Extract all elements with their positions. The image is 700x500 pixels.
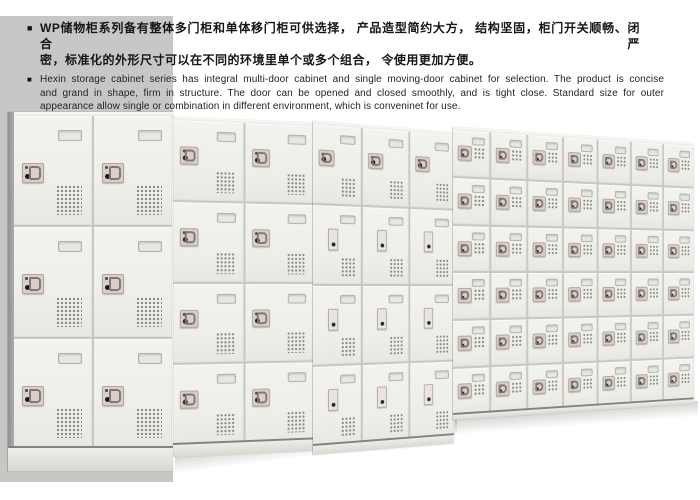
- door-lock: [568, 288, 581, 302]
- door-lock: [636, 374, 648, 388]
- door-handle-slot: [472, 374, 485, 383]
- door-handle-slot: [138, 241, 162, 252]
- intro-zh-line: 密，标准化的外形尺寸可以在不同的环境里单个或多个组合， 令使用更加方便。: [40, 52, 640, 68]
- door-lock: [252, 229, 270, 247]
- door-lock: [568, 333, 581, 348]
- locker-door: [528, 181, 562, 226]
- locker-door: [598, 273, 630, 316]
- door-lock: [636, 243, 648, 257]
- door-lock: [668, 158, 679, 172]
- locker-door: [173, 364, 244, 445]
- door-lock: [252, 389, 270, 407]
- lock-hasp: [29, 166, 41, 180]
- vent-grille: [583, 378, 594, 391]
- locker-door: [491, 133, 526, 180]
- door-grid: [173, 120, 314, 445]
- door-handle-slot: [648, 148, 659, 156]
- lock-hasp: [185, 312, 196, 324]
- door-handle-slot: [58, 130, 82, 141]
- door-grid: [313, 124, 454, 446]
- locker-door: [453, 178, 489, 225]
- door-lock: [636, 156, 648, 170]
- lock-hasp: [670, 375, 677, 383]
- lock-hasp: [638, 202, 645, 210]
- door-handle-slot: [217, 213, 236, 223]
- door-handle-slot: [435, 142, 449, 151]
- door-handle-slot: [509, 140, 522, 149]
- vent-grille: [548, 380, 559, 393]
- vent-grille: [389, 336, 403, 355]
- door-lock: [458, 336, 472, 351]
- locker-door: [363, 207, 409, 284]
- cabinet-c-4tier-3door: [313, 121, 454, 455]
- intro-bullet-en: ■ Hexin storage cabinet series has integ…: [27, 73, 664, 114]
- door-lock: [458, 145, 472, 161]
- door-lock: [533, 150, 546, 165]
- locker-door: [564, 273, 597, 316]
- vent-grille: [341, 416, 356, 436]
- door-handle-slot: [679, 193, 690, 201]
- vent-grille: [548, 197, 559, 210]
- door-handle-slot: [679, 364, 690, 372]
- door-lock: [603, 376, 615, 391]
- keyhole-dot: [380, 244, 384, 248]
- lock-hasp: [670, 332, 677, 340]
- door-handle-slot: [546, 325, 558, 333]
- locker-door: [632, 273, 663, 315]
- lock-hasp: [535, 382, 543, 391]
- keyhole-dot: [331, 403, 335, 407]
- locker-door: [14, 227, 92, 336]
- locker-door: [410, 132, 454, 209]
- lock-hasp: [498, 291, 507, 300]
- vent-grille: [681, 373, 691, 385]
- door-handle-slot: [340, 374, 356, 384]
- door-handle-slot: [58, 353, 82, 364]
- door-handle-slot: [615, 367, 626, 375]
- door-key-lock: [377, 308, 387, 329]
- vent-grille: [511, 289, 523, 302]
- door-handle-slot: [217, 374, 236, 384]
- vent-grille: [616, 288, 627, 300]
- door-lock: [568, 197, 581, 212]
- locker-door: [632, 142, 663, 185]
- locker-door: [598, 361, 630, 405]
- door-lock: [180, 309, 199, 327]
- cabinet-a-3tier-2door: [8, 112, 173, 471]
- vent-grille: [56, 297, 82, 327]
- vent-grille: [681, 288, 691, 300]
- locker-door: [246, 203, 314, 281]
- lock-hasp: [670, 290, 677, 298]
- door-handle-slot: [435, 295, 449, 304]
- lock-hasp: [605, 201, 613, 210]
- door-key-lock: [377, 230, 387, 251]
- door-handle-slot: [615, 191, 626, 199]
- door-lock: [668, 201, 679, 215]
- door-handle-slot: [58, 241, 82, 252]
- door-lock: [458, 288, 472, 303]
- door-lock: [319, 149, 335, 166]
- vent-grille: [136, 185, 162, 215]
- door-lock: [180, 228, 199, 246]
- locker-door: [528, 273, 562, 317]
- door-handle-slot: [648, 365, 659, 373]
- door-lock: [603, 243, 615, 257]
- vent-grille: [583, 199, 594, 212]
- locker-door: [564, 318, 597, 362]
- door-handle-slot: [509, 186, 522, 194]
- vent-grille: [474, 336, 486, 349]
- locker-door: [598, 317, 630, 360]
- locker-door: [410, 286, 454, 361]
- door-handle-slot: [389, 295, 404, 304]
- door-handle-slot: [581, 234, 593, 242]
- vent-grille: [436, 410, 449, 429]
- door-lock: [22, 274, 44, 294]
- door-lock: [568, 152, 581, 167]
- vent-grille: [474, 383, 486, 396]
- locker-door: [491, 227, 526, 272]
- door-handle-slot: [472, 279, 485, 287]
- door-handle-slot: [389, 217, 404, 226]
- intro-en-lines: Hexin storage cabinet series has integra…: [40, 73, 664, 114]
- locker-door: [664, 273, 694, 314]
- vent-grille: [56, 185, 82, 215]
- locker-door: [453, 226, 489, 272]
- locker-door: [598, 229, 630, 272]
- lock-hasp: [535, 337, 543, 346]
- door-lock: [668, 330, 679, 344]
- vent-grille: [511, 243, 523, 256]
- door-handle-slot: [679, 279, 690, 286]
- lock-hasp: [460, 244, 469, 253]
- lock-hasp: [257, 312, 267, 324]
- door-lock: [102, 386, 124, 406]
- door-lock: [636, 287, 648, 301]
- vent-grille: [649, 288, 659, 300]
- locker-door: [528, 135, 562, 181]
- locker-door: [453, 321, 489, 368]
- door-handle-slot: [509, 372, 522, 380]
- locker-door: [564, 228, 597, 271]
- door-handle-slot: [288, 293, 306, 303]
- lock-hasp: [257, 392, 267, 404]
- locker-door: [94, 116, 172, 225]
- door-handle-slot: [288, 135, 306, 145]
- locker-door: [632, 230, 663, 272]
- lock-hasp: [109, 277, 121, 291]
- door-lock: [496, 148, 510, 163]
- locker-door: [564, 183, 597, 227]
- door-handle-slot: [472, 232, 485, 240]
- door-handle-slot: [389, 372, 404, 381]
- lock-hasp: [570, 200, 578, 209]
- lock-hasp: [638, 333, 645, 341]
- door-handle-slot: [581, 324, 593, 332]
- cabinet-base: [8, 446, 173, 471]
- lock-hasp: [638, 377, 645, 386]
- door-handle-slot: [509, 233, 522, 241]
- vent-grille: [389, 258, 403, 276]
- intro-zh-line: WP储物柜系列备有整体多门柜和单体移门柜可供选择， 产品造型简约大方， 结构坚固…: [40, 20, 640, 52]
- vent-grille: [436, 183, 449, 201]
- lock-hasp: [185, 149, 196, 161]
- door-lock: [458, 241, 472, 256]
- door-lock: [496, 194, 510, 209]
- keyhole-dot: [427, 245, 430, 249]
- locker-door: [664, 144, 694, 187]
- locker-door: [173, 120, 244, 201]
- vent-grille: [649, 201, 659, 213]
- lock-hasp: [605, 334, 613, 343]
- vent-grille: [681, 330, 691, 342]
- vent-grille: [616, 376, 627, 389]
- door-lock: [603, 332, 615, 346]
- vent-grille: [216, 333, 235, 355]
- door-lock: [533, 242, 546, 257]
- locker-door: [598, 184, 630, 227]
- vent-grille: [474, 195, 486, 208]
- vent-grille: [341, 257, 356, 276]
- door-lock: [496, 241, 510, 256]
- door-key-lock: [424, 308, 433, 329]
- lock-rivet: [25, 277, 28, 280]
- door-lock: [533, 379, 546, 394]
- door-handle-slot: [472, 137, 485, 146]
- locker-door: [246, 284, 314, 362]
- door-lock: [496, 288, 510, 303]
- door-handle-slot: [435, 218, 449, 227]
- locker-door: [491, 180, 526, 226]
- vent-grille: [548, 289, 559, 302]
- door-lock: [252, 309, 270, 327]
- intro-zh-lines: WP储物柜系列备有整体多门柜和单体移门柜可供选择， 产品造型简约大方， 结构坚固…: [40, 20, 640, 68]
- door-handle-slot: [340, 135, 356, 145]
- door-lock: [603, 154, 615, 169]
- vent-grille: [649, 158, 659, 170]
- vent-grille: [136, 408, 162, 438]
- door-handle-slot: [546, 142, 558, 150]
- door-lock: [102, 163, 124, 183]
- locker-door: [453, 368, 489, 415]
- vent-grille: [511, 149, 523, 162]
- lock-hasp: [460, 339, 469, 348]
- door-handle-slot: [581, 369, 593, 377]
- locker-door: [14, 116, 92, 225]
- door-key-lock: [424, 384, 433, 405]
- door-handle-slot: [546, 279, 558, 287]
- door-handle-slot: [679, 236, 690, 243]
- lock-rivet: [105, 277, 108, 280]
- door-key-lock: [328, 389, 338, 411]
- door-lock: [458, 383, 472, 399]
- keyhole-dot: [380, 400, 384, 404]
- door-lock: [668, 373, 679, 387]
- door-handle-slot: [138, 130, 162, 141]
- vent-grille: [511, 382, 523, 395]
- lock-hasp: [185, 394, 196, 406]
- locker-door: [632, 360, 663, 403]
- door-handle-slot: [435, 370, 449, 379]
- keyhole-dot: [331, 323, 335, 327]
- locker-door: [363, 128, 409, 207]
- door-handle-slot: [340, 295, 356, 304]
- door-lock: [496, 381, 510, 396]
- door-handle-slot: [217, 132, 236, 143]
- lock-rivet: [25, 166, 28, 169]
- lock-hasp: [570, 381, 578, 390]
- door-key-lock: [377, 386, 387, 408]
- door-handle-slot: [648, 279, 659, 286]
- lock-hasp: [371, 156, 380, 166]
- intro-en-line: appearance allow single or combination i…: [40, 100, 664, 114]
- lock-hasp: [638, 159, 645, 168]
- intro-en-line: Hexin storage cabinet series has integra…: [40, 73, 664, 87]
- vent-grille: [56, 408, 82, 438]
- door-lock: [22, 386, 44, 406]
- locker-door: [94, 339, 172, 448]
- vent-grille: [583, 333, 594, 346]
- lock-hasp: [605, 379, 613, 388]
- door-handle-slot: [138, 353, 162, 364]
- vent-grille: [287, 173, 305, 195]
- locker-door: [453, 130, 489, 177]
- locker-door: [664, 358, 694, 401]
- door-lock: [568, 242, 581, 256]
- lock-hasp: [498, 384, 507, 393]
- locker-door: [313, 205, 361, 284]
- door-lock: [22, 163, 44, 183]
- door-handle-slot: [615, 323, 626, 331]
- keyhole-dot: [427, 321, 430, 325]
- vent-grille: [548, 334, 559, 347]
- locker-door: [173, 202, 244, 282]
- vent-grille: [681, 159, 691, 171]
- locker-door: [313, 286, 361, 365]
- lock-hasp: [605, 246, 613, 254]
- locker-door: [246, 123, 314, 203]
- lock-hasp: [185, 231, 196, 243]
- locker-door: [598, 140, 630, 184]
- lock-hasp: [670, 247, 677, 255]
- door-handle-slot: [648, 322, 659, 330]
- intro-en-line: and grand in shape, firm in structure. T…: [40, 87, 664, 101]
- door-handle-slot: [679, 321, 690, 328]
- bullet-square-icon: ■: [27, 20, 40, 36]
- lock-hasp: [29, 389, 41, 403]
- lock-hasp: [460, 148, 469, 157]
- lock-hasp: [605, 290, 613, 298]
- door-key-lock: [328, 309, 338, 331]
- door-lock: [533, 334, 546, 349]
- lock-hasp: [498, 338, 507, 347]
- lock-hasp: [638, 290, 645, 298]
- intro-bullet-zh: ■ WP储物柜系列备有整体多门柜和单体移门柜可供选择， 产品造型简约大方， 结构…: [27, 20, 664, 68]
- door-lock: [368, 153, 383, 169]
- lock-hasp: [109, 389, 121, 403]
- locker-door: [491, 320, 526, 366]
- vent-grille: [649, 374, 659, 386]
- door-lock: [636, 200, 648, 214]
- vent-grille: [341, 178, 356, 197]
- locker-door: [632, 186, 663, 229]
- door-lock: [180, 146, 199, 165]
- lock-hasp: [670, 161, 677, 169]
- lock-hasp: [535, 291, 543, 300]
- lock-hasp: [570, 335, 578, 344]
- door-handle-slot: [546, 188, 558, 196]
- door-lock: [102, 274, 124, 294]
- door-lock: [603, 287, 615, 301]
- door-lock: [415, 156, 429, 172]
- door-handle-slot: [615, 235, 626, 243]
- lock-hasp: [535, 199, 543, 208]
- lock-hasp: [109, 166, 121, 180]
- lock-rivet: [25, 389, 28, 392]
- locker-door: [363, 363, 409, 442]
- door-handle-slot: [581, 144, 593, 152]
- door-lock: [458, 193, 472, 208]
- vent-grille: [389, 180, 403, 199]
- lock-hasp: [257, 152, 267, 164]
- lock-hasp: [535, 245, 543, 254]
- door-handle-slot: [509, 326, 522, 334]
- locker-door: [313, 365, 361, 446]
- door-lock: [180, 391, 199, 409]
- door-lock: [668, 244, 679, 258]
- door-handle-slot: [389, 139, 404, 149]
- locker-door: [410, 362, 454, 439]
- locker-door: [313, 124, 361, 205]
- door-grid: [453, 130, 694, 415]
- door-handle-slot: [581, 189, 593, 197]
- door-handle-slot: [472, 185, 485, 193]
- door-lock: [496, 335, 510, 350]
- door-handle-slot: [340, 215, 356, 224]
- locker-door: [14, 339, 92, 448]
- vent-grille: [436, 335, 449, 353]
- vent-grille: [474, 242, 486, 255]
- locker-door: [94, 227, 172, 336]
- locker-door: [528, 364, 562, 410]
- keyhole-dot: [331, 242, 335, 246]
- vent-grille: [216, 413, 235, 435]
- vent-grille: [474, 289, 486, 302]
- locker-door: [664, 316, 694, 358]
- vent-grille: [681, 202, 691, 214]
- catalog-page: ■ WP储物柜系列备有整体多门柜和单体移门柜可供选择， 产品造型简约大方， 结构…: [0, 0, 700, 500]
- door-handle-slot: [217, 293, 236, 303]
- door-handle-slot: [546, 233, 558, 241]
- vent-grille: [287, 411, 305, 433]
- lock-hasp: [460, 196, 469, 205]
- locker-door: [491, 273, 526, 318]
- door-handle-slot: [288, 372, 306, 382]
- cabinet-d-6tier-7door: [453, 127, 694, 420]
- vent-grille: [649, 245, 659, 257]
- lock-hasp: [570, 155, 578, 164]
- vent-grille: [616, 332, 627, 344]
- lock-rivet: [105, 389, 108, 392]
- door-handle-slot: [581, 279, 593, 287]
- lock-hasp: [29, 277, 41, 291]
- vent-grille: [649, 331, 659, 343]
- door-handle-slot: [648, 235, 659, 242]
- door-lock: [668, 287, 679, 301]
- vent-grille: [216, 252, 235, 274]
- intro-text-block: ■ WP储物柜系列备有整体多门柜和单体移门柜可供选择， 产品造型简约大方， 结构…: [27, 20, 664, 114]
